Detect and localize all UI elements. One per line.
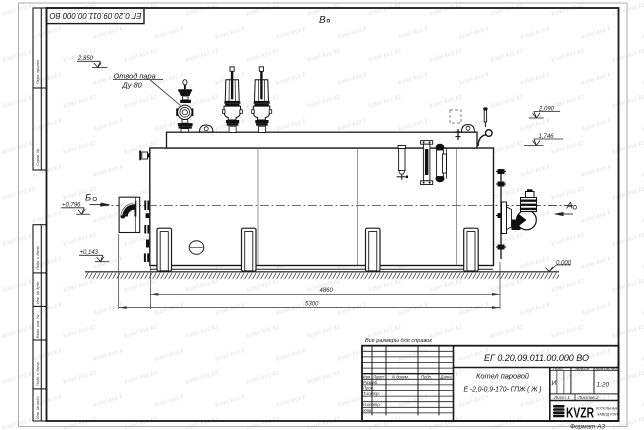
svg-text:Т.контр.: Т.контр. [363, 391, 380, 396]
svg-text:Все размеры для справок: Все размеры для справок [365, 338, 432, 344]
svg-text:Подп. и дата: Подп. и дата [36, 362, 40, 386]
svg-text:+0,796: +0,796 [62, 203, 81, 209]
svg-text:Инв. № дубл.: Инв. № дубл. [36, 281, 40, 304]
svg-text:N докум.: N докум. [392, 374, 409, 379]
svg-text:И: И [552, 380, 557, 387]
svg-text:А: А [566, 201, 573, 212]
svg-text:5300: 5300 [305, 301, 319, 307]
svg-text:Подп.: Подп. [421, 374, 432, 379]
svg-text:ЕГ 0.20.09.011.00.000 ВО: ЕГ 0.20.09.011.00.000 ВО [484, 352, 590, 363]
svg-text:Дата: Дата [440, 374, 453, 379]
svg-text:0,000: 0,000 [556, 260, 572, 266]
svg-text:+0,143: +0,143 [80, 250, 99, 256]
svg-text:Изм.: Изм. [363, 374, 372, 379]
svg-text:Масса: Масса [576, 366, 590, 371]
svg-text:Разраб.: Разраб. [363, 380, 378, 385]
svg-text:ЗАВОД РЭП: ЗАВОД РЭП [597, 413, 618, 417]
svg-text:Перв. примен.: Перв. примен. [36, 59, 40, 84]
svg-text:KVZR: KVZR [566, 405, 594, 422]
svg-text:Подп. и дата: Подп. и дата [36, 246, 40, 270]
svg-text:Лит.: Лит. [552, 366, 564, 371]
svg-text:Отвод пара: Отвод пара [114, 71, 156, 80]
svg-text:Пров.: Пров. [363, 385, 374, 390]
svg-text:Н.контр.: Н.контр. [363, 402, 381, 407]
svg-text:КОТЕЛЬНЫЙ: КОТЕЛЬНЫЙ [596, 407, 619, 411]
svg-text:4860: 4860 [320, 288, 334, 294]
svg-text:Ду 80: Ду 80 [122, 80, 143, 89]
svg-text:Справ. №: Справ. № [36, 149, 40, 166]
svg-text:Формат А3: Формат А3 [570, 424, 605, 430]
svg-text:Лист: Лист [372, 374, 384, 379]
svg-text:Инв. № подл.: Инв. № подл. [36, 395, 40, 419]
svg-text:Масштаб: Масштаб [596, 366, 618, 371]
svg-text:Листов 2: Листов 2 [577, 395, 599, 400]
svg-text:Лист 1: Лист 1 [553, 395, 570, 400]
svg-text:В: В [319, 15, 326, 26]
svg-text:1,746: 1,746 [539, 134, 555, 140]
svg-text:1:20: 1:20 [597, 382, 610, 389]
svg-text:2,090: 2,090 [538, 106, 555, 112]
svg-text:ЕГ 0.20.09.011.00.000 ВО: ЕГ 0.20.09.011.00.000 ВО [50, 11, 142, 20]
svg-text:Утв.: Утв. [363, 408, 373, 413]
svg-text:Взам. инв. №: Взам. инв. № [36, 315, 40, 338]
svg-text:2,850: 2,850 [77, 56, 94, 62]
svg-text:Е -2,0-0,9-170- ГПЖ ( Ж ): Е -2,0-0,9-170- ГПЖ ( Ж ) [464, 385, 542, 394]
svg-text:Б: Б [85, 193, 91, 204]
svg-text:Котел паровой: Котел паровой [476, 372, 529, 381]
